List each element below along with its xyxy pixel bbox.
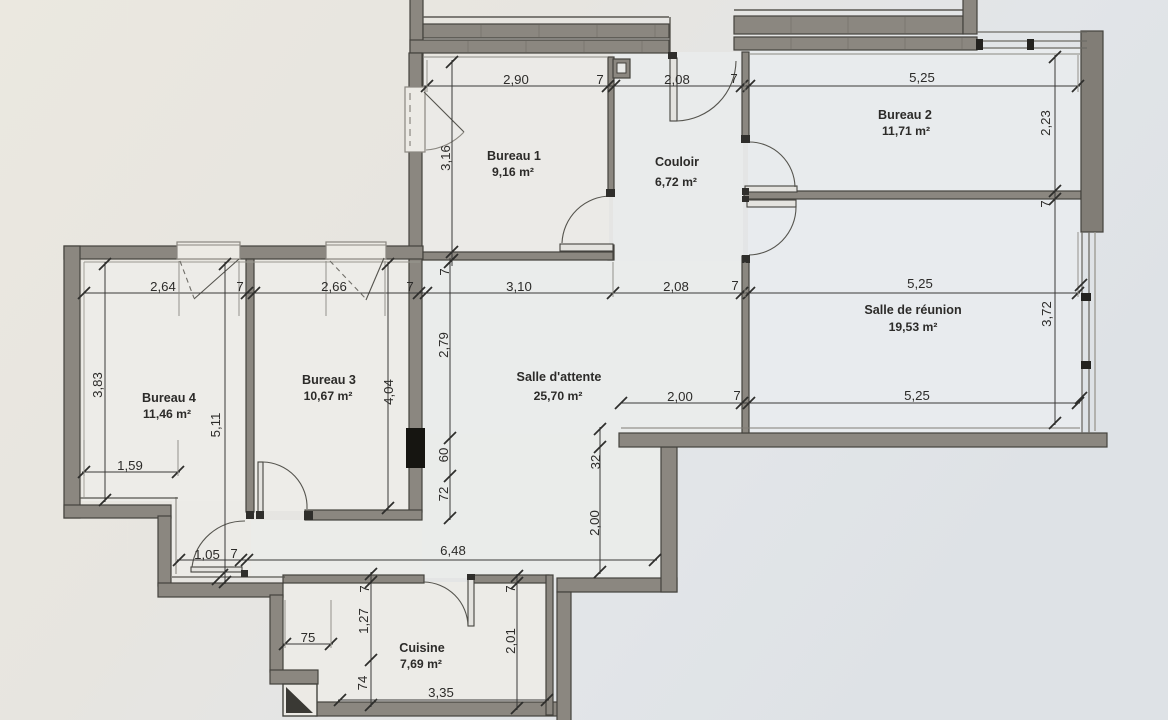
svg-text:5,25: 5,25 [907,276,933,291]
svg-text:7: 7 [437,268,452,275]
svg-text:2,00: 2,00 [667,389,693,404]
svg-text:Bureau 3: Bureau 3 [302,373,356,387]
svg-text:2,00: 2,00 [587,510,602,536]
svg-text:9,16 m²: 9,16 m² [492,165,534,179]
svg-text:74: 74 [355,676,370,691]
svg-text:Salle d'attente: Salle d'attente [517,370,602,384]
svg-text:7: 7 [236,279,243,294]
svg-text:2,08: 2,08 [664,72,690,87]
svg-text:7: 7 [1038,200,1053,207]
svg-text:3,10: 3,10 [506,279,532,294]
svg-text:5,25: 5,25 [904,388,930,403]
svg-text:1,59: 1,59 [117,458,143,473]
svg-text:Cuisine: Cuisine [399,641,445,655]
svg-text:7,69 m²: 7,69 m² [400,657,442,671]
svg-text:11,46 m²: 11,46 m² [143,407,191,421]
svg-text:7: 7 [730,71,737,86]
svg-text:Bureau 1: Bureau 1 [487,149,541,163]
svg-text:2,08: 2,08 [663,279,689,294]
svg-text:7: 7 [406,279,413,294]
svg-text:72: 72 [436,487,451,502]
svg-text:7: 7 [357,585,372,592]
svg-text:6,48: 6,48 [440,543,466,558]
svg-text:5,25: 5,25 [909,70,935,85]
svg-text:3,35: 3,35 [428,685,454,700]
svg-text:7: 7 [503,585,518,592]
svg-text:Couloir: Couloir [655,155,699,169]
svg-text:1,27: 1,27 [356,608,371,634]
svg-text:6,72 m²: 6,72 m² [655,175,697,189]
svg-text:7: 7 [596,72,603,87]
svg-text:3,83: 3,83 [90,372,105,398]
svg-text:32: 32 [588,455,603,470]
svg-text:Salle de réunion: Salle de réunion [864,303,961,317]
svg-text:2,01: 2,01 [503,628,518,654]
svg-text:25,70 m²: 25,70 m² [534,389,583,403]
svg-text:7: 7 [731,278,738,293]
svg-text:1,05: 1,05 [194,547,220,562]
svg-text:Bureau 4: Bureau 4 [142,391,196,405]
svg-text:19,53 m²: 19,53 m² [889,320,938,334]
svg-text:2,90: 2,90 [503,72,529,87]
svg-text:2,64: 2,64 [150,279,176,294]
svg-text:10,67 m²: 10,67 m² [304,389,353,403]
svg-text:60: 60 [436,448,451,463]
svg-text:2,79: 2,79 [436,332,451,358]
svg-text:2,23: 2,23 [1038,110,1053,136]
svg-text:7: 7 [230,546,237,561]
svg-text:75: 75 [301,630,316,645]
svg-text:11,71 m²: 11,71 m² [882,124,930,138]
svg-text:2,66: 2,66 [321,279,347,294]
svg-text:3,16: 3,16 [438,145,453,171]
svg-text:5,11: 5,11 [208,413,223,438]
svg-text:4,04: 4,04 [381,379,396,405]
svg-text:Bureau 2: Bureau 2 [878,108,932,122]
svg-text:7: 7 [733,388,740,403]
svg-text:3,72: 3,72 [1039,301,1054,327]
